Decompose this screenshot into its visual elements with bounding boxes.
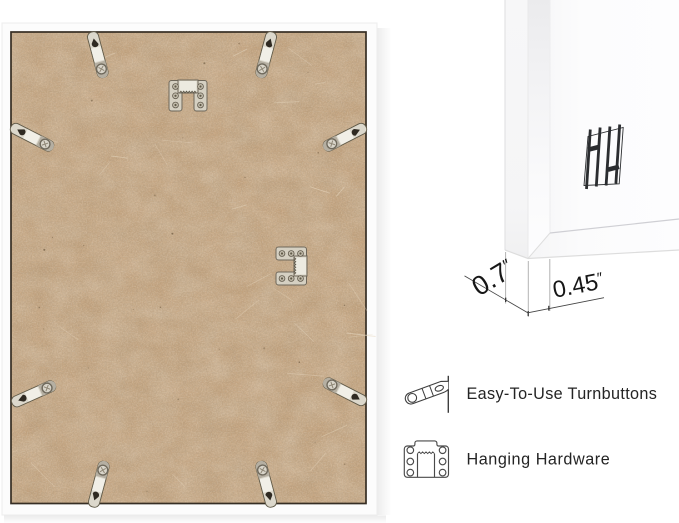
svg-text:Hanging Hardware: Hanging Hardware [467, 451, 611, 469]
svg-text:Easy-To-Use Turnbuttons: Easy-To-Use Turnbuttons [467, 385, 658, 403]
